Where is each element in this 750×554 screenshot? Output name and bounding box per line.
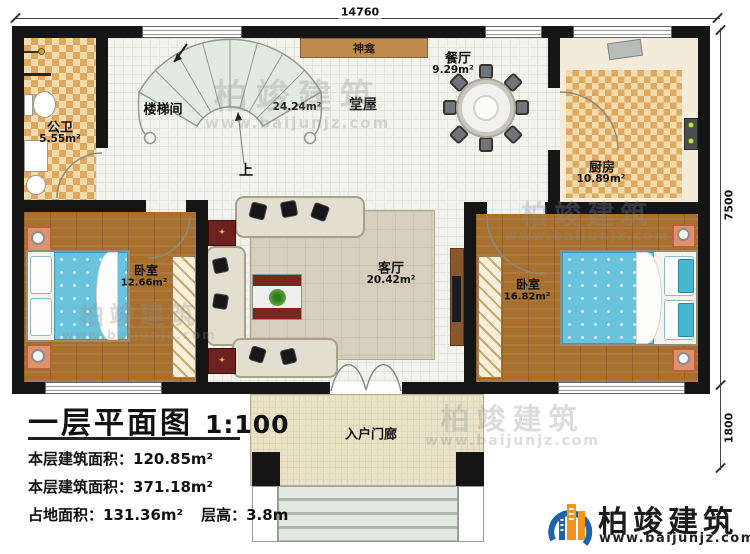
stat-total-area: 本层建筑面积：371.18m²: [28, 476, 213, 497]
stat-value: 371.18m²: [133, 478, 213, 496]
dimension-width: 14760: [338, 6, 382, 19]
stat-floor-area: 本层建筑面积：120.85m²: [28, 448, 213, 469]
room-label-bedroom-left: 卧室: [134, 262, 158, 279]
room-area-bedroom-right: 16.82m²: [504, 292, 550, 303]
stat-label: 本层建筑面积：: [28, 478, 133, 496]
room-label-porch: 入户门廊: [345, 424, 397, 443]
dimension-height-lower: 1800: [723, 410, 736, 447]
brand-url: www.baijunjz.com: [599, 531, 750, 546]
stat-label: 层高：: [201, 506, 246, 524]
room-label-hall: 堂屋: [349, 94, 377, 114]
brand-logo-icon: [545, 496, 593, 550]
stat-value: 131.36m²: [103, 506, 183, 524]
plan-scale: 1:100: [205, 410, 290, 439]
stat-footprint-height: 占地面积：131.36m²层高：3.8m: [28, 504, 288, 525]
stat-value: 120.85m²: [133, 450, 213, 468]
plan-title-row: 一层平面图1:100: [28, 398, 290, 442]
room-label-stairwell: 楼梯间: [143, 99, 182, 118]
stat-label: 占地面积：: [28, 506, 103, 524]
room-label-bedroom-right: 卧室: [516, 276, 540, 293]
room-area-living: 20.42m²: [367, 274, 416, 286]
dimension-height-upper: 7500: [723, 187, 736, 224]
plan-title: 一层平面图: [28, 406, 193, 441]
stat-value: 3.8m: [246, 506, 288, 524]
room-area-bedroom-left: 12.66m²: [121, 278, 167, 289]
room-area-kitchen: 10.89m²: [577, 173, 626, 185]
room-area-hall: 24.24m²: [273, 101, 322, 113]
stat-label: 本层建筑面积：: [28, 450, 133, 468]
room-area-bathroom: 5.55m²: [39, 133, 80, 145]
room-area-dining: 9.29m²: [432, 64, 473, 76]
title-underline: [28, 437, 240, 440]
dimension-line-right: [720, 28, 721, 470]
floor-plan-canvas: ✦ ✦ 神龛: [0, 0, 750, 554]
